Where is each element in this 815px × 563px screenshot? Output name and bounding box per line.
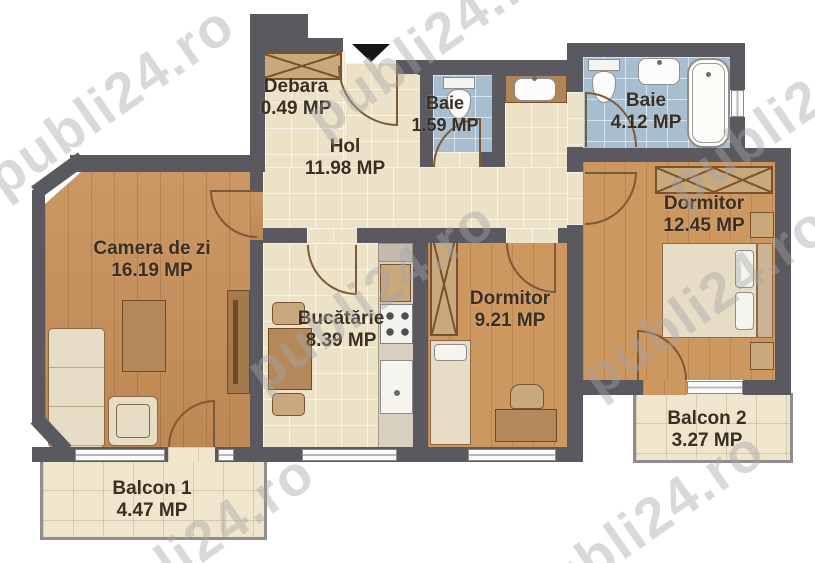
- door-opening: [567, 92, 583, 147]
- door-opening: [168, 447, 215, 462]
- wall-segment: [743, 380, 791, 395]
- room-name: Baie: [411, 92, 478, 114]
- desk-chair: [510, 384, 544, 409]
- pillow: [434, 344, 467, 361]
- room-name: Camera de zi: [93, 238, 210, 260]
- wall-segment: [250, 38, 343, 52]
- nightstand: [750, 212, 774, 238]
- fridge: [380, 264, 411, 302]
- coffee-table: [122, 300, 166, 372]
- room-name: Dormitor: [470, 288, 550, 310]
- window: [218, 449, 234, 461]
- room-label-dormitor-mic: Dormitor 9.21 MP: [470, 288, 550, 332]
- kitchen-sink: [380, 360, 413, 414]
- pillow: [735, 292, 754, 330]
- room-label-camera-de-zi: Camera de zi 16.19 MP: [93, 238, 210, 282]
- room-label-hol: Hol 11.98 MP: [305, 136, 385, 180]
- window: [302, 449, 397, 461]
- faucet-icon: [657, 60, 662, 65]
- room-area: 16.19 MP: [93, 260, 210, 282]
- wall-segment: [567, 225, 583, 395]
- wall-segment: [567, 43, 583, 92]
- wall-segment: [567, 148, 791, 162]
- room-area: 4.12 MP: [611, 112, 682, 134]
- wall-segment: [420, 152, 433, 167]
- wall-segment: [250, 172, 263, 192]
- wall-segment: [479, 152, 505, 167]
- room-label-balcon-1: Balcon 1 4.47 MP: [112, 478, 191, 522]
- wardrobe: [430, 233, 458, 336]
- armchair-cushion: [116, 404, 150, 438]
- wall-segment: [32, 190, 45, 422]
- wall-segment: [567, 43, 745, 57]
- room-area: 9.21 MP: [470, 310, 550, 332]
- room-label-bucatarie: Bucătărie 8.39 MP: [298, 308, 385, 352]
- faucet-icon: [532, 76, 537, 81]
- wall-segment: [396, 60, 420, 74]
- room-label-balcon-2: Balcon 2 3.27 MP: [667, 408, 746, 452]
- wall-segment: [428, 228, 506, 243]
- nightstand: [750, 342, 774, 370]
- drain-icon: [706, 72, 711, 77]
- wall-segment: [567, 380, 643, 395]
- vent-window: [731, 90, 744, 117]
- wall-segment: [730, 43, 745, 90]
- floor-plan: Debara 0.49 MP Hol 11.98 MP Baie 1.59 MP…: [0, 0, 815, 563]
- wall-segment: [250, 240, 263, 462]
- dining-chair: [272, 393, 305, 416]
- room-area: 11.98 MP: [305, 158, 385, 180]
- entrance-arrow-icon: [352, 44, 390, 62]
- room-name: Balcon 2: [667, 408, 746, 430]
- washbasin: [514, 78, 556, 101]
- window: [75, 449, 165, 461]
- window: [687, 381, 743, 394]
- pillow: [735, 250, 754, 288]
- kitchen-upper-cabinet: [378, 243, 413, 262]
- wall-segment: [492, 60, 505, 167]
- wall-segment: [357, 228, 413, 243]
- door-opening: [643, 380, 687, 395]
- toilet-tank: [443, 77, 475, 89]
- room-name: Bucătărie: [298, 308, 385, 330]
- tv-cabinet: [227, 290, 250, 394]
- window: [468, 449, 556, 461]
- stove: [380, 304, 413, 344]
- room-area: 4.47 MP: [112, 500, 191, 522]
- door-opening: [307, 228, 357, 243]
- room-label-dormitor-mare: Dormitor 12.45 MP: [663, 193, 744, 237]
- door-opening: [567, 172, 583, 225]
- wall-segment: [775, 155, 791, 395]
- wall-segment: [70, 155, 254, 172]
- wall-segment: [250, 14, 308, 40]
- room-area: 0.49 MP: [261, 98, 332, 120]
- room-area: 12.45 MP: [663, 215, 744, 237]
- room-name: Debara: [261, 76, 332, 98]
- room-area: 8.39 MP: [298, 330, 385, 352]
- room-label-baie-mica: Baie 1.59 MP: [411, 92, 478, 136]
- wardrobe: [655, 166, 773, 194]
- bed-headboard: [757, 243, 773, 338]
- room-area: 3.27 MP: [667, 430, 746, 452]
- tv-icon: [233, 300, 238, 384]
- room-name: Balcon 1: [112, 478, 191, 500]
- room-area: 1.59 MP: [411, 114, 478, 136]
- room-name: Baie: [611, 90, 682, 112]
- door-opening: [506, 228, 558, 243]
- room-name: Dormitor: [663, 193, 744, 215]
- wall-segment: [418, 60, 570, 75]
- desk: [495, 409, 557, 442]
- faucet-icon: [394, 390, 400, 396]
- wall-segment: [413, 228, 428, 462]
- room-name: Hol: [305, 136, 385, 158]
- room-label-debara: Debara 0.49 MP: [261, 76, 332, 120]
- room-label-baie-mare: Baie 4.12 MP: [611, 90, 682, 134]
- toilet-tank: [588, 59, 620, 71]
